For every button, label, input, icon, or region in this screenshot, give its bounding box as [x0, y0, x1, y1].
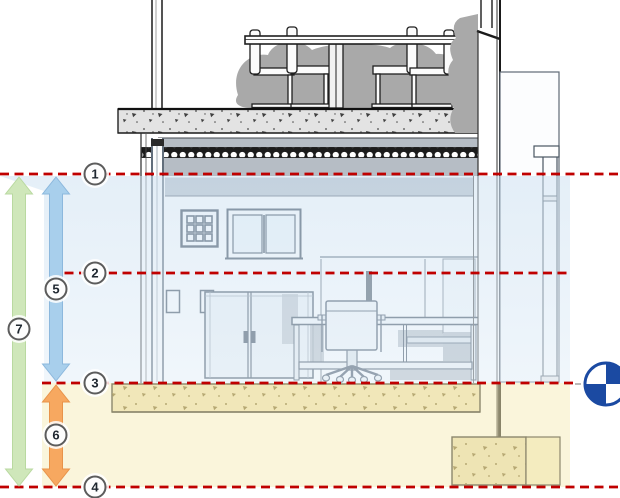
survey-point-icon[interactable] — [585, 363, 620, 405]
svg-text:5: 5 — [52, 282, 59, 297]
svg-text:6: 6 — [52, 428, 59, 443]
svg-text:2: 2 — [91, 266, 98, 281]
span-marker-6[interactable]: 6 — [42, 421, 70, 449]
insulation-strip — [142, 148, 478, 158]
upper-wall-stub — [152, 0, 163, 109]
svg-text:7: 7 — [15, 322, 22, 337]
svg-text:4: 4 — [91, 480, 99, 495]
svg-text:3: 3 — [91, 376, 98, 391]
span-marker-7[interactable]: 7 — [5, 315, 33, 343]
section-drawing: 1 2 3 4 5 6 7 — [0, 0, 620, 498]
upper-floor-slab — [118, 109, 487, 133]
ceiling-assembly — [142, 138, 485, 176]
section-illustration: 1 2 3 4 5 6 7 — [0, 0, 620, 498]
lower-zone-overlay — [42, 383, 570, 487]
level-marker-3[interactable]: 3 — [81, 369, 109, 397]
span-marker-5[interactable]: 5 — [42, 275, 70, 303]
level-marker-1[interactable]: 1 — [81, 160, 109, 188]
svg-text:1: 1 — [91, 167, 98, 182]
level-marker-2[interactable]: 2 — [81, 259, 109, 287]
